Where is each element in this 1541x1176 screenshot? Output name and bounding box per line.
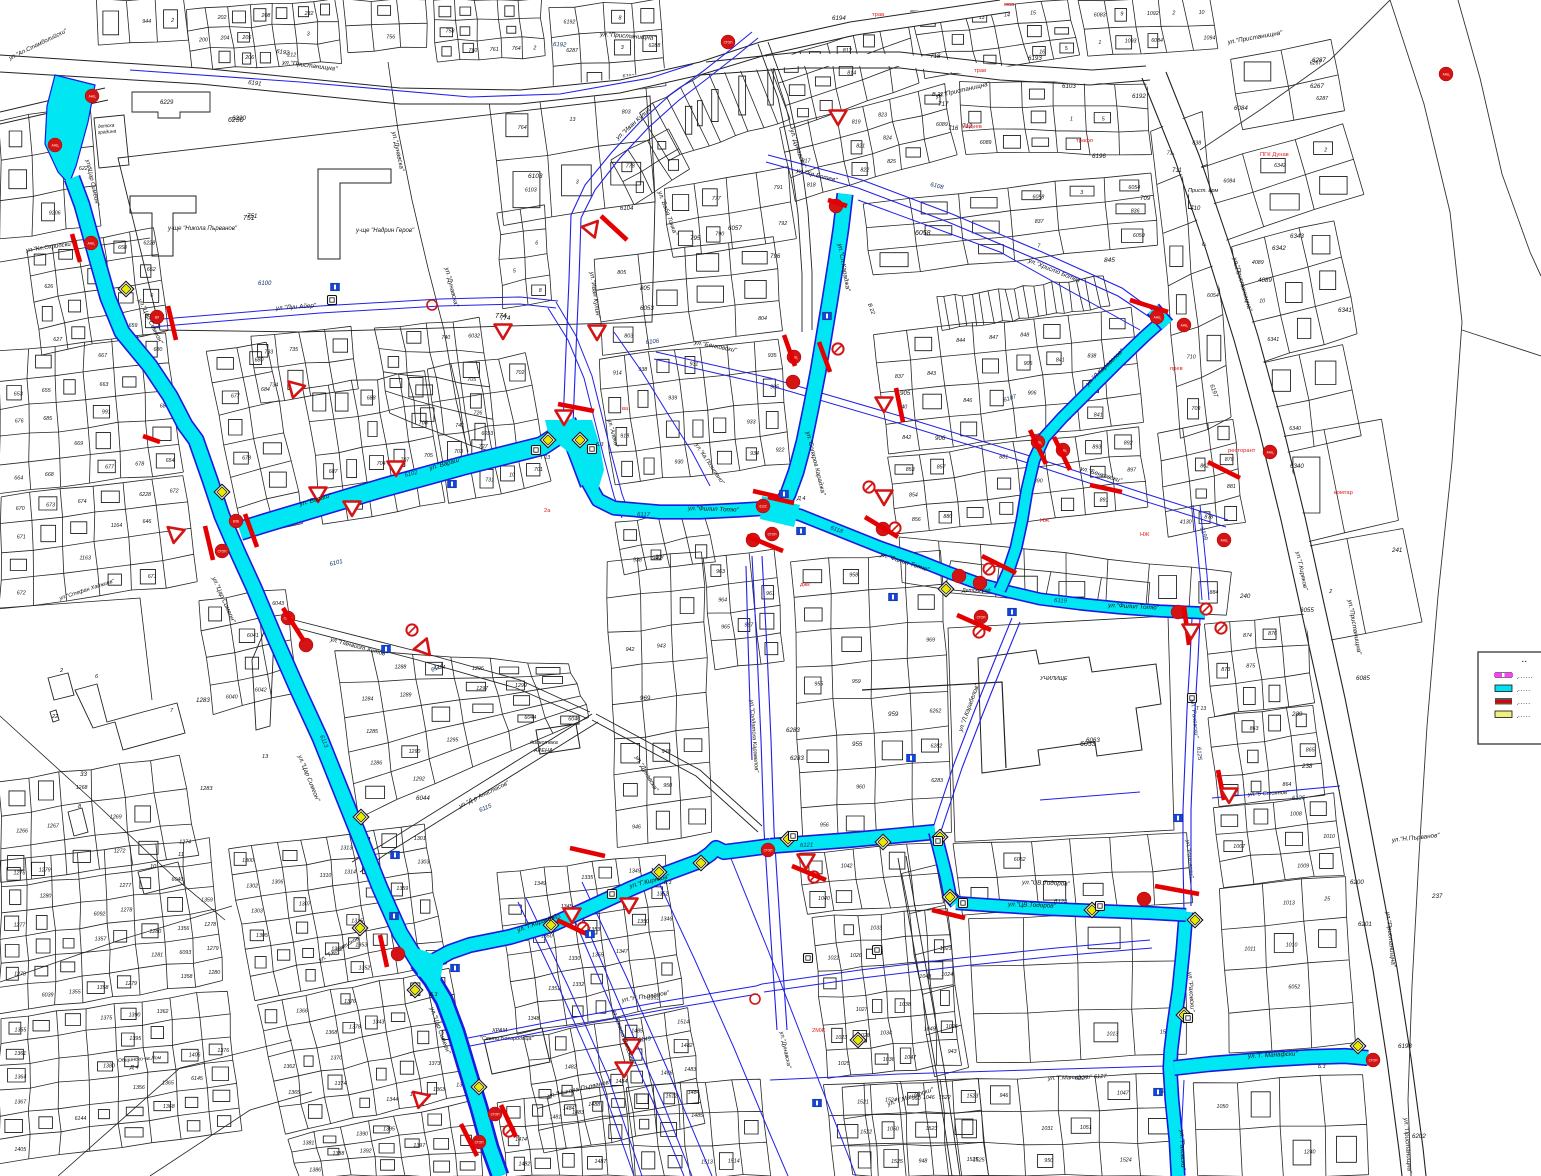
- svg-text:2: 2: [1328, 589, 1332, 595]
- svg-text:1026: 1026: [850, 953, 862, 959]
- svg-text:663: 663: [100, 382, 109, 388]
- svg-text:1525: 1525: [891, 1159, 903, 1165]
- svg-text:627: 627: [53, 337, 63, 343]
- svg-text:1093: 1093: [1125, 39, 1137, 45]
- svg-text:942: 942: [652, 555, 663, 562]
- svg-text:846: 846: [963, 398, 972, 404]
- svg-text:.∙ ∙ ∙ ∙ ∙: .∙ ∙ ∙ ∙ ∙: [1517, 701, 1530, 706]
- svg-text:Детски сад: Детски сад: [961, 588, 991, 594]
- svg-text:6342: 6342: [1272, 245, 1286, 252]
- svg-text:1269: 1269: [110, 815, 122, 821]
- svg-text:934: 934: [750, 451, 759, 457]
- svg-text:959: 959: [852, 679, 861, 685]
- svg-text:АНЦ: АНЦ: [1221, 539, 1228, 543]
- svg-text:946: 946: [632, 825, 641, 831]
- svg-text:10: 10: [1259, 299, 1265, 305]
- svg-text:964: 964: [718, 597, 727, 603]
- svg-text:6194: 6194: [832, 15, 846, 22]
- svg-text:.∙ ∙ ∙ ∙ ∙: .∙ ∙ ∙ ∙ ∙: [1517, 714, 1530, 719]
- svg-text:1368: 1368: [163, 1104, 175, 1110]
- svg-text:237: 237: [1431, 893, 1443, 900]
- svg-text:1482: 1482: [519, 1162, 531, 1168]
- svg-text:673: 673: [46, 503, 55, 509]
- svg-text:844: 844: [956, 338, 965, 344]
- svg-text:1349: 1349: [534, 881, 546, 887]
- svg-text:2: 2: [532, 45, 536, 51]
- svg-text:1280: 1280: [40, 894, 52, 900]
- svg-text:881: 881: [1227, 484, 1236, 490]
- svg-text:6341: 6341: [1267, 337, 1279, 343]
- svg-text:1363: 1363: [433, 1087, 445, 1093]
- svg-text:8: 8: [619, 16, 622, 22]
- svg-text:СТОП: СТОП: [218, 550, 227, 554]
- svg-text:1240: 1240: [1304, 1149, 1316, 1155]
- svg-text:1386: 1386: [309, 1168, 321, 1174]
- svg-text:6033: 6033: [481, 431, 493, 437]
- svg-text:6342: 6342: [1274, 163, 1286, 169]
- svg-text:комтар: комтар: [1334, 490, 1353, 496]
- svg-text:1373: 1373: [429, 1061, 441, 1067]
- svg-text:684: 684: [261, 387, 270, 393]
- svg-text:960: 960: [856, 784, 865, 790]
- svg-text:1303: 1303: [251, 908, 263, 914]
- svg-text:1302: 1302: [246, 884, 258, 890]
- svg-text:9206: 9206: [49, 211, 61, 217]
- svg-text:1380: 1380: [103, 1064, 115, 1070]
- svg-text:1277: 1277: [14, 923, 27, 929]
- svg-text:206: 206: [244, 55, 254, 61]
- svg-text:969: 969: [926, 637, 935, 643]
- svg-text:751: 751: [247, 213, 257, 220]
- svg-text:6287: 6287: [566, 48, 579, 54]
- svg-text:1352: 1352: [359, 966, 371, 972]
- svg-text:906: 906: [1028, 390, 1037, 396]
- svg-text:1031: 1031: [1041, 1126, 1053, 1132]
- svg-text:1050: 1050: [887, 1127, 899, 1133]
- svg-text:1010: 1010: [1323, 834, 1335, 840]
- svg-text:864: 864: [1283, 782, 1292, 788]
- svg-text:АНЦ: АНЦ: [1443, 73, 1450, 77]
- svg-text:6287: 6287: [1312, 57, 1326, 64]
- svg-text:Чернев: Чернев: [962, 124, 982, 130]
- svg-text:1375: 1375: [100, 1016, 112, 1022]
- svg-text:777: 777: [712, 196, 722, 202]
- svg-text:805: 805: [617, 270, 626, 276]
- svg-text:6040: 6040: [226, 694, 238, 700]
- svg-text:792: 792: [778, 221, 787, 227]
- svg-text:803: 803: [624, 334, 633, 340]
- svg-text:6229: 6229: [160, 100, 174, 106]
- svg-text:1355: 1355: [15, 1027, 27, 1033]
- svg-text:200: 200: [198, 37, 208, 43]
- svg-text:1357: 1357: [95, 937, 108, 943]
- svg-text:892: 892: [1124, 441, 1133, 447]
- svg-text:967: 967: [744, 622, 754, 628]
- svg-text:6103: 6103: [525, 188, 537, 194]
- svg-text:СТОП: СТОП: [475, 1141, 484, 1145]
- svg-text:1344: 1344: [386, 1097, 398, 1103]
- svg-text:906: 906: [935, 435, 946, 442]
- svg-text:856: 856: [912, 517, 921, 523]
- svg-text:1612: 1612: [666, 1094, 678, 1100]
- svg-text:6192: 6192: [564, 20, 576, 26]
- svg-text:1525: 1525: [967, 1157, 979, 1163]
- svg-text:847: 847: [989, 335, 999, 341]
- svg-text:955: 955: [814, 682, 823, 688]
- svg-text:6117: 6117: [637, 512, 651, 518]
- svg-text:АНЦ: АНЦ: [88, 242, 95, 246]
- svg-text:3: 3: [621, 45, 624, 51]
- svg-text:703: 703: [454, 449, 463, 455]
- svg-text:803: 803: [622, 110, 631, 116]
- svg-text:845: 845: [1104, 257, 1115, 264]
- svg-text:6144: 6144: [75, 1116, 87, 1122]
- svg-text:756: 756: [386, 35, 395, 41]
- svg-text:1026: 1026: [946, 1024, 958, 1030]
- svg-text:709: 709: [1192, 406, 1201, 412]
- svg-text:1047: 1047: [1117, 1090, 1130, 1096]
- svg-text:796: 796: [770, 253, 781, 260]
- svg-text:717: 717: [938, 101, 949, 108]
- svg-text:11: 11: [178, 852, 184, 858]
- svg-text:965: 965: [721, 624, 730, 630]
- svg-text:22: 22: [51, 714, 59, 720]
- svg-text:6053: 6053: [640, 305, 654, 312]
- svg-text:814: 814: [847, 71, 856, 77]
- svg-text:1314: 1314: [344, 870, 356, 876]
- svg-text:1050: 1050: [1217, 1104, 1229, 1110]
- svg-text:6283: 6283: [931, 778, 943, 784]
- svg-text:1395: 1395: [129, 1036, 141, 1042]
- svg-text:6262: 6262: [930, 708, 942, 714]
- svg-text:677: 677: [231, 394, 241, 400]
- svg-text:6084: 6084: [1223, 179, 1235, 185]
- svg-text:1092: 1092: [1147, 11, 1159, 17]
- svg-text:758: 758: [446, 29, 455, 35]
- svg-text:1343: 1343: [373, 1020, 385, 1026]
- svg-text:25: 25: [1323, 896, 1330, 902]
- svg-text:874: 874: [1243, 633, 1252, 639]
- svg-text:878: 878: [1204, 515, 1213, 521]
- svg-text:822: 822: [860, 167, 869, 173]
- svg-text:1349: 1349: [629, 869, 641, 875]
- svg-text:у-ще "Никола Първанов": у-ще "Никола Първанов": [167, 226, 238, 232]
- svg-text:991: 991: [102, 410, 111, 416]
- svg-text:АНЦ: АНЦ: [1154, 316, 1161, 320]
- svg-text:735: 735: [289, 347, 298, 353]
- svg-text:1362: 1362: [283, 1064, 295, 1070]
- svg-text:НЖ: НЖ: [1140, 532, 1150, 538]
- svg-text:1353: 1353: [355, 942, 367, 948]
- svg-text:1406: 1406: [189, 1052, 201, 1058]
- svg-text:669: 669: [74, 441, 83, 447]
- svg-text:716: 716: [948, 125, 959, 132]
- svg-text:1051: 1051: [1080, 1125, 1092, 1131]
- svg-text:950: 950: [663, 783, 672, 789]
- svg-text:6052: 6052: [1288, 985, 1300, 991]
- svg-text:Б.3: Б.3: [664, 880, 672, 886]
- svg-text:6283: 6283: [790, 755, 804, 762]
- svg-text:1300: 1300: [242, 858, 254, 864]
- svg-text:6124: 6124: [1054, 899, 1068, 905]
- svg-text:680: 680: [154, 347, 163, 353]
- svg-text:УЧИЛИЩЕ: УЧИЛИЩЕ: [1039, 676, 1068, 682]
- svg-text:1272: 1272: [114, 848, 126, 854]
- svg-text:прев: прев: [1170, 366, 1183, 372]
- svg-text:1356: 1356: [178, 926, 190, 932]
- svg-text:955: 955: [852, 741, 863, 748]
- svg-text:1042: 1042: [841, 864, 853, 870]
- svg-text:1040: 1040: [818, 896, 830, 902]
- svg-text:6125: 6125: [1195, 747, 1202, 761]
- svg-text:731: 731: [485, 477, 494, 483]
- svg-text:1313: 1313: [340, 845, 352, 851]
- svg-text:931: 931: [690, 362, 699, 368]
- svg-text:1305: 1305: [256, 933, 268, 939]
- svg-text:956: 956: [820, 823, 829, 829]
- svg-text:914: 914: [613, 371, 622, 377]
- svg-text:1483: 1483: [684, 1067, 696, 1073]
- svg-text:1482: 1482: [565, 1064, 577, 1070]
- svg-text:933: 933: [747, 419, 756, 425]
- svg-text:1007: 1007: [1233, 844, 1246, 850]
- svg-text:824: 824: [883, 136, 892, 142]
- svg-text:В 22: В 22: [932, 92, 943, 98]
- svg-text:6041: 6041: [247, 633, 259, 639]
- svg-text:6100: 6100: [258, 281, 272, 287]
- svg-text:202: 202: [217, 15, 227, 21]
- svg-text:1284: 1284: [362, 696, 374, 702]
- svg-text:6145: 6145: [191, 1076, 203, 1082]
- svg-text:Б.3: Б.3: [430, 992, 438, 998]
- svg-text:6283: 6283: [786, 727, 800, 734]
- svg-text:6042: 6042: [255, 688, 267, 694]
- svg-text:6126: 6126: [1292, 795, 1306, 802]
- svg-text:1356: 1356: [133, 1085, 145, 1091]
- svg-text:1523: 1523: [926, 1126, 938, 1132]
- svg-text:6058: 6058: [1033, 195, 1045, 201]
- svg-text:дискотека: дискотека: [530, 740, 558, 746]
- svg-text:876: 876: [1268, 631, 1277, 637]
- svg-text:1279: 1279: [207, 946, 219, 952]
- svg-text:959: 959: [888, 711, 899, 718]
- svg-text:671: 671: [148, 574, 157, 580]
- svg-text:1163: 1163: [80, 556, 91, 562]
- svg-text:1359: 1359: [201, 898, 213, 904]
- svg-text:1033: 1033: [870, 926, 882, 932]
- svg-text:АНЦ: АНЦ: [1267, 451, 1274, 455]
- svg-text:837: 837: [895, 374, 905, 380]
- svg-text:у-ще "Надрин Геров": у-ще "Надрин Геров": [355, 228, 415, 234]
- svg-text:ВЛ: ВЛ: [155, 316, 159, 320]
- svg-text:1295: 1295: [447, 738, 459, 744]
- svg-text:812: 812: [843, 48, 852, 54]
- svg-text:893: 893: [1092, 444, 1101, 450]
- svg-text:1283: 1283: [196, 697, 210, 704]
- svg-text:873: 873: [1221, 667, 1230, 673]
- svg-text:6103: 6103: [528, 173, 543, 180]
- svg-text:6063: 6063: [1086, 737, 1100, 744]
- svg-text:6089: 6089: [936, 122, 948, 128]
- svg-text:ва: ва: [622, 406, 629, 412]
- svg-text:818: 818: [807, 183, 816, 189]
- svg-text:958: 958: [849, 573, 858, 579]
- svg-text:1350: 1350: [637, 919, 649, 925]
- svg-text:1388: 1388: [333, 1151, 345, 1157]
- svg-text:6122: 6122: [759, 505, 766, 509]
- svg-text:1027: 1027: [856, 1007, 869, 1013]
- svg-text:204: 204: [220, 35, 230, 41]
- svg-text:6228: 6228: [139, 492, 151, 498]
- svg-text:1390: 1390: [356, 1131, 368, 1137]
- svg-text:6084: 6084: [1234, 105, 1248, 112]
- svg-text:668: 668: [45, 472, 54, 478]
- svg-text:6054: 6054: [1207, 293, 1219, 299]
- svg-text:мав: мав: [1004, 2, 1014, 8]
- svg-text:СТОП: СТОП: [764, 849, 773, 853]
- svg-text:1022: 1022: [828, 956, 840, 962]
- svg-text:6043: 6043: [272, 601, 284, 607]
- svg-text:6287: 6287: [1316, 96, 1329, 102]
- svg-text:6044: 6044: [416, 795, 430, 802]
- svg-text:1362: 1362: [157, 1009, 169, 1015]
- svg-text:1514: 1514: [728, 1158, 740, 1164]
- svg-text:884: 884: [1210, 590, 1219, 596]
- svg-text:905: 905: [1024, 361, 1033, 367]
- svg-text:626: 626: [44, 284, 53, 290]
- svg-text:• •: • •: [1522, 659, 1527, 664]
- svg-text:891: 891: [1100, 497, 1109, 503]
- svg-text:Б.3: Б.3: [1318, 1064, 1326, 1070]
- svg-text:1283: 1283: [200, 786, 213, 792]
- svg-text:10: 10: [1199, 10, 1205, 16]
- svg-text:6196: 6196: [1092, 153, 1106, 160]
- svg-text:6052: 6052: [1014, 857, 1026, 863]
- svg-text:2: 2: [170, 18, 174, 24]
- svg-text:857: 857: [937, 464, 947, 470]
- svg-text:946: 946: [1000, 1093, 1009, 1099]
- svg-text:1038: 1038: [899, 1002, 911, 1008]
- svg-text:1364: 1364: [15, 1075, 27, 1081]
- svg-text:Прист. арм: Прист. арм: [1188, 188, 1218, 194]
- svg-text:1290: 1290: [409, 749, 421, 755]
- svg-text:1047: 1047: [904, 1055, 917, 1061]
- svg-text:АНЦ: АНЦ: [1181, 324, 1188, 328]
- svg-text:АНЦ: АНЦ: [52, 144, 59, 148]
- svg-text:680: 680: [255, 358, 264, 364]
- svg-text:819: 819: [852, 120, 861, 126]
- svg-text:705: 705: [424, 453, 433, 459]
- svg-text:6282: 6282: [931, 743, 943, 749]
- svg-text:943: 943: [948, 1049, 957, 1055]
- svg-text:677: 677: [105, 465, 115, 471]
- svg-text:8: 8: [539, 288, 542, 294]
- svg-text:6192: 6192: [553, 42, 567, 48]
- svg-text:1267: 1267: [47, 824, 60, 830]
- svg-text:1482: 1482: [681, 1043, 693, 1049]
- svg-text:241: 241: [1391, 547, 1402, 554]
- svg-text:6230: 6230: [232, 115, 246, 122]
- svg-text:1306: 1306: [272, 880, 284, 886]
- svg-text:6084: 6084: [1151, 38, 1163, 44]
- svg-text:711: 711: [1172, 167, 1182, 174]
- svg-text:.∙ ∙ ∙ ∙ ∙: .∙ ∙ ∙ ∙ ∙: [1517, 688, 1530, 693]
- svg-text:795: 795: [690, 235, 701, 242]
- svg-text:Б.3: Б.3: [596, 442, 604, 448]
- svg-text:1397: 1397: [413, 1143, 426, 1149]
- svg-text:1289: 1289: [400, 692, 412, 698]
- svg-text:1368: 1368: [325, 1030, 337, 1036]
- svg-text:10: 10: [509, 472, 515, 478]
- svg-text:1: 1: [1070, 116, 1073, 122]
- svg-text:1011: 1011: [1244, 946, 1255, 952]
- svg-text:687: 687: [329, 469, 339, 475]
- svg-text:2: 2: [1171, 11, 1175, 17]
- svg-text:трав: трав: [872, 12, 884, 18]
- svg-text:1390: 1390: [129, 1013, 141, 1019]
- svg-text:6057: 6057: [728, 225, 742, 232]
- svg-text:1280: 1280: [208, 970, 220, 976]
- svg-text:672: 672: [170, 489, 179, 495]
- svg-text:1278: 1278: [121, 908, 133, 914]
- svg-text:1330: 1330: [569, 956, 581, 962]
- svg-text:761: 761: [490, 47, 499, 53]
- svg-text:823: 823: [878, 112, 887, 118]
- svg-text:2: 2: [1323, 147, 1327, 153]
- svg-text:1376: 1376: [217, 1048, 229, 1054]
- svg-text:1303: 1303: [418, 859, 430, 865]
- svg-text:948: 948: [919, 1158, 928, 1164]
- svg-text:205: 205: [241, 35, 251, 41]
- svg-text:6341: 6341: [1338, 307, 1352, 314]
- svg-text:трафо: трафо: [1076, 138, 1093, 144]
- svg-text:1036: 1036: [883, 1057, 895, 1063]
- svg-text:1514: 1514: [677, 1020, 689, 1026]
- svg-text:1094: 1094: [1204, 36, 1216, 42]
- svg-text:853: 853: [906, 467, 915, 473]
- svg-text:969: 969: [640, 695, 651, 702]
- svg-text:ул."Раховски": ул."Раховски": [1178, 1129, 1186, 1171]
- svg-text:239: 239: [1291, 711, 1303, 718]
- svg-text:238: 238: [1301, 763, 1313, 770]
- svg-text:6288: 6288: [649, 43, 661, 49]
- svg-text:6121: 6121: [800, 843, 814, 849]
- svg-text:1009: 1009: [1297, 863, 1309, 869]
- svg-text:Т 13: Т 13: [1196, 706, 1206, 712]
- svg-text:15: 15: [1030, 11, 1036, 17]
- svg-text:778: 778: [626, 164, 635, 170]
- svg-text:.∙ ∙ ∙ ∙ ∙ ∙: .∙ ∙ ∙ ∙ ∙ ∙: [1517, 675, 1532, 680]
- svg-text:2а: 2а: [544, 508, 551, 514]
- svg-text:676: 676: [15, 419, 24, 425]
- svg-text:726: 726: [474, 411, 483, 417]
- svg-text:841: 841: [1056, 357, 1065, 363]
- svg-text:664: 664: [14, 476, 23, 482]
- svg-text:9: 9: [1120, 12, 1123, 18]
- svg-text:6119: 6119: [1054, 598, 1068, 605]
- svg-text:944: 944: [142, 19, 151, 25]
- svg-text:1392: 1392: [360, 1148, 372, 1154]
- svg-text:джк: джк: [800, 582, 810, 588]
- svg-text:734: 734: [269, 383, 278, 389]
- svg-text:1286: 1286: [370, 761, 382, 767]
- svg-text:1023: 1023: [940, 946, 952, 952]
- svg-text:трав: трав: [974, 68, 986, 74]
- svg-text:1376: 1376: [344, 999, 356, 1005]
- svg-text:930: 930: [675, 460, 684, 466]
- svg-text:1164: 1164: [111, 523, 122, 529]
- svg-text:ВЛБ: ВЛБ: [233, 520, 239, 524]
